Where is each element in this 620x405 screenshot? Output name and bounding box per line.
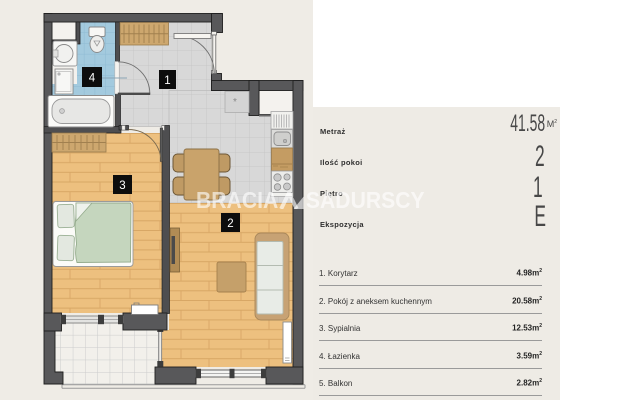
svg-text:*: * bbox=[233, 97, 237, 108]
svg-text:2: 2 bbox=[227, 218, 233, 230]
svg-text:4: 4 bbox=[89, 73, 96, 85]
svg-text:1: 1 bbox=[164, 75, 170, 87]
svg-text:3: 3 bbox=[119, 180, 125, 192]
